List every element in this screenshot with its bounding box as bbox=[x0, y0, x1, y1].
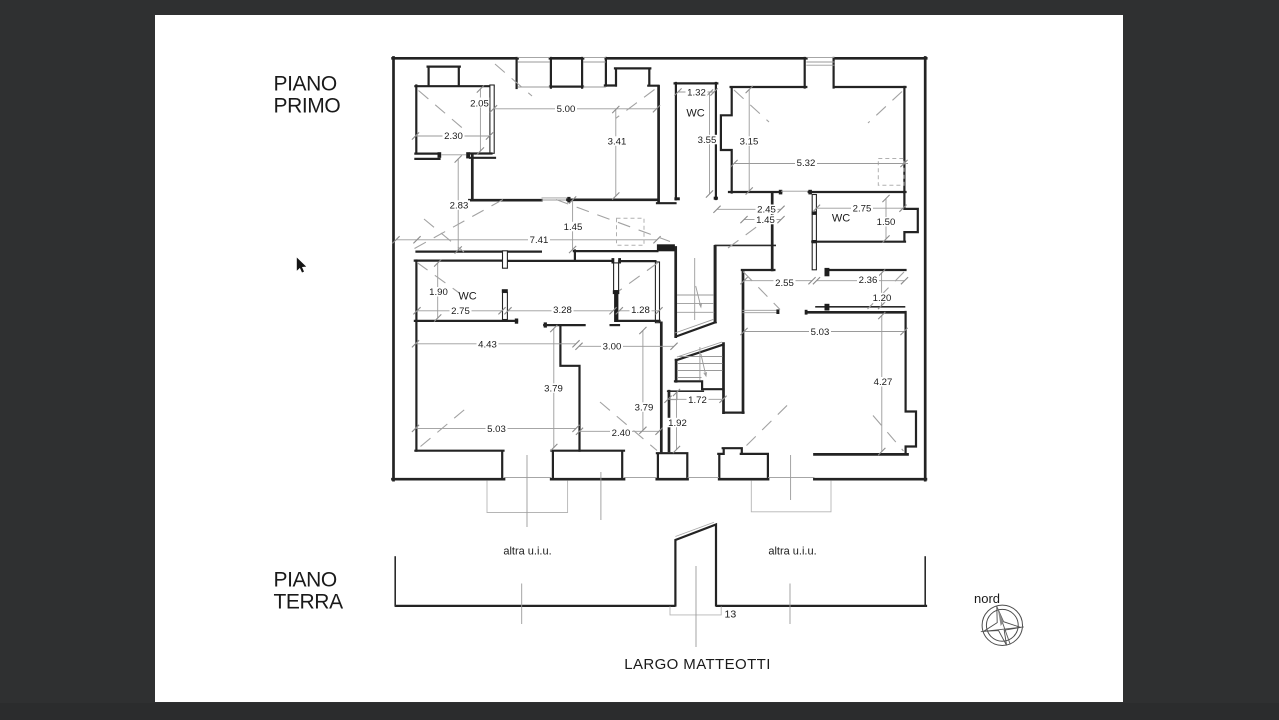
svg-text:3.00: 3.00 bbox=[603, 342, 622, 353]
svg-text:4.43: 4.43 bbox=[478, 340, 497, 351]
svg-text:1.45: 1.45 bbox=[756, 215, 775, 226]
svg-text:1.72: 1.72 bbox=[688, 395, 707, 406]
svg-text:3.28: 3.28 bbox=[553, 305, 572, 316]
svg-text:nord: nord bbox=[974, 591, 1000, 606]
svg-text:1.32: 1.32 bbox=[687, 88, 706, 99]
svg-text:altra u.i.u.: altra u.i.u. bbox=[503, 546, 551, 558]
svg-text:3.79: 3.79 bbox=[544, 384, 563, 395]
svg-text:3.55: 3.55 bbox=[698, 135, 717, 146]
svg-text:1.45: 1.45 bbox=[564, 222, 583, 233]
svg-text:WC: WC bbox=[686, 108, 704, 120]
svg-text:1.90: 1.90 bbox=[429, 287, 448, 298]
svg-text:2.55: 2.55 bbox=[775, 278, 794, 289]
svg-text:PIANO: PIANO bbox=[274, 73, 337, 96]
svg-text:1.92: 1.92 bbox=[668, 418, 687, 429]
svg-text:3.79: 3.79 bbox=[635, 403, 654, 414]
svg-text:7.41: 7.41 bbox=[530, 235, 549, 246]
svg-text:3.15: 3.15 bbox=[740, 137, 759, 148]
svg-text:2.36: 2.36 bbox=[859, 275, 878, 286]
svg-text:2.30: 2.30 bbox=[444, 131, 463, 142]
svg-text:5.00: 5.00 bbox=[557, 104, 576, 115]
svg-text:PRIMO: PRIMO bbox=[274, 95, 341, 118]
svg-text:1.28: 1.28 bbox=[631, 305, 650, 316]
svg-text:1.20: 1.20 bbox=[873, 293, 892, 304]
svg-text:5.03: 5.03 bbox=[811, 327, 830, 338]
svg-text:2.40: 2.40 bbox=[612, 428, 631, 439]
svg-text:2.05: 2.05 bbox=[470, 98, 489, 109]
svg-text:TERRA: TERRA bbox=[274, 591, 344, 614]
svg-text:3.41: 3.41 bbox=[608, 137, 627, 148]
svg-text:WC: WC bbox=[832, 213, 850, 225]
svg-text:13: 13 bbox=[725, 609, 737, 621]
svg-text:4.27: 4.27 bbox=[874, 377, 893, 388]
svg-text:2.83: 2.83 bbox=[450, 201, 469, 212]
svg-text:altra u.i.u.: altra u.i.u. bbox=[768, 546, 816, 558]
svg-text:5.03: 5.03 bbox=[487, 424, 506, 435]
svg-text:2.75: 2.75 bbox=[451, 306, 470, 317]
svg-text:2.75: 2.75 bbox=[853, 204, 872, 215]
svg-text:PIANO: PIANO bbox=[274, 569, 337, 592]
svg-text:5.32: 5.32 bbox=[797, 158, 816, 169]
svg-text:WC: WC bbox=[458, 291, 476, 303]
svg-text:1.50: 1.50 bbox=[877, 217, 896, 228]
svg-text:LARGO MATTEOTTI: LARGO MATTEOTTI bbox=[624, 656, 771, 673]
